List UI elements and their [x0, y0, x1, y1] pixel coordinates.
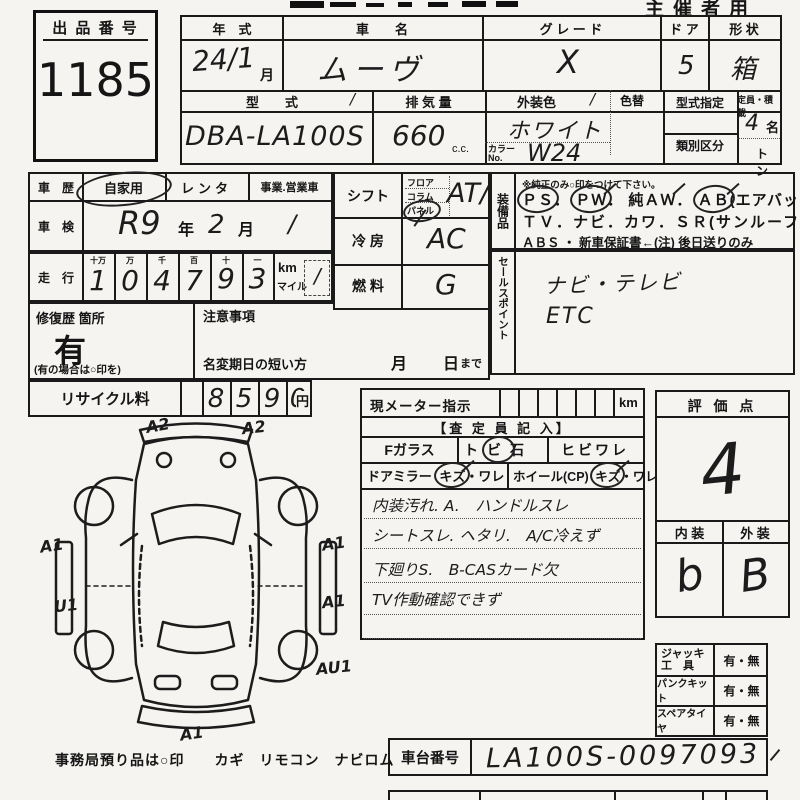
color-tick: /	[590, 90, 595, 108]
damage-annotation: A1	[321, 532, 347, 554]
interior-label: 内 装	[657, 523, 722, 542]
exterior-color-label: 外装色	[517, 92, 556, 111]
jack-value: 有・無	[713, 645, 770, 675]
vehicle-table: 年 式 車 名 グ レ ー ド ド ア 形 状 24/1 月 ムーヴ X 5 箱…	[180, 15, 782, 165]
class-division-label: 類別区分	[663, 137, 737, 154]
organizer-use-label: 主催者用	[645, 0, 757, 15]
history-label: 車 歴	[30, 174, 82, 200]
puncture-kit-label: パンクキット	[657, 675, 713, 705]
equipment-line1: ＰＳ． ＰＷ． 純ＡＷ． ＡＢ(エアバック)	[522, 189, 800, 210]
repair-note: (有の場合は○印を)	[34, 362, 121, 377]
mileage-digit: 3	[242, 262, 273, 295]
year-month-unit: 月	[260, 65, 274, 85]
evaluation-box: 評 価 点 4 内 装 外 装 b B	[655, 390, 790, 618]
inspection-year-unit: 年	[178, 216, 194, 240]
km-unit: km	[278, 260, 297, 275]
mileage-unit-tick: /	[314, 264, 321, 288]
sales-line1: ナビ・テレビ	[544, 266, 683, 301]
model-tick: /	[350, 90, 355, 108]
equip-ab-note: (エアバック)	[730, 192, 800, 209]
name-change-made: まで	[460, 355, 482, 371]
inspector-header: 【査 定 員 記 入】	[362, 418, 643, 437]
damage-annotation: A2	[241, 417, 266, 438]
mileage-digit: 0	[114, 264, 146, 297]
equip-ab: ＡＢ	[698, 189, 730, 210]
inspector-note-1: 内装汚れ. A. ハンドルスレ	[372, 494, 568, 516]
mile-unit: マイル	[277, 278, 307, 293]
ac-value: AC	[427, 222, 466, 255]
equip-ps: ＰＳ	[522, 189, 554, 210]
bottom-partial-table	[388, 790, 768, 800]
mirror-crack-opt: ・ワレ	[465, 469, 504, 484]
equip-aw: 純ＡＷ	[628, 189, 676, 210]
recycle-fee-row: リサイクル料 8 5 9 0 円	[28, 380, 312, 417]
shift-label: シフト	[335, 174, 401, 217]
wheel-crack-opt: ・ワレ	[620, 470, 658, 484]
repair-label: 修復歴 箇所	[36, 308, 105, 327]
exterior-grade: B	[719, 546, 791, 606]
chassis-number-box: 車台番号 LA100S-0097093	[388, 738, 768, 776]
inspection-tick: /	[288, 210, 296, 238]
equipment-label: 装備品	[494, 176, 512, 246]
model-label: 型 式	[182, 92, 362, 111]
name-change-day: 日	[443, 350, 459, 374]
auction-number-value: 1185	[36, 53, 155, 107]
wheel-label: ホイール(CP)	[513, 470, 589, 484]
meter-unit: km	[619, 395, 638, 410]
recycle-digit: 5	[230, 384, 258, 414]
color-no-value: W24	[527, 139, 581, 167]
year-label: 年 式	[182, 19, 282, 38]
equipment-line2: ＴＶ．ナビ．カワ．ＳＲ(サンルーフ)	[522, 211, 800, 232]
sales-line2: ETC	[546, 304, 595, 329]
spare-tire-label: スペアタイヤ	[657, 705, 713, 735]
wheel-scratch-opt: キズ	[595, 466, 620, 485]
recycle-unit: 円	[296, 391, 309, 410]
car-top-view-schematic	[36, 414, 356, 748]
chassis-value: LA100S-0097093	[486, 739, 761, 775]
displacement-unit: c.c.	[452, 143, 469, 155]
damage-annotation: AU1	[315, 656, 353, 679]
fuel-value: G	[435, 268, 457, 301]
name-change-month: 月	[391, 350, 407, 374]
color-change-label: 色替	[620, 92, 644, 109]
inspection-row: 車 検 R9 年 2 月 /	[28, 200, 333, 252]
puncture-kit-value: 有・無	[713, 675, 770, 705]
shape-label: 形 状	[708, 19, 780, 38]
mileage-label: 走 行	[30, 254, 82, 300]
jack-label-line1: ジャッキ	[661, 648, 704, 660]
ac-label: 冷 房	[335, 217, 401, 264]
shape-value: 箱	[730, 49, 756, 86]
damage-annotation: A2	[145, 414, 171, 437]
chassis-hand-tick	[770, 749, 781, 761]
damage-annotation: A1	[321, 591, 346, 612]
caution-label: 注意事項	[203, 306, 255, 325]
year-value: 24/1	[191, 41, 256, 78]
interior-grade: b	[653, 545, 726, 607]
model-value: DBA-LA100S	[185, 121, 365, 152]
equipment-box: 装備品 ※純正のみ○印をつけて下さい。 ＰＳ． ＰＷ． 純ＡＷ． ＡＢ(エアバッ…	[490, 172, 795, 250]
displacement-label: 排 気 量	[372, 92, 485, 111]
front-glass-label: Fガラス	[362, 440, 457, 460]
damage-annotation: U1	[53, 595, 79, 616]
jack-label-line2: 工 具	[661, 660, 694, 672]
caution-box: 注意事項 名変期日の短い方 月 日 まで	[195, 302, 490, 380]
name-label: 車 名	[282, 19, 482, 38]
name-change-label: 名変期日の短い方	[203, 354, 307, 373]
sep: ．	[676, 192, 692, 209]
capacity-value: 4	[745, 111, 759, 136]
door-mirror-label: ドアミラー	[367, 469, 432, 484]
inspection-era: R9	[118, 204, 161, 242]
recycle-digit: 8	[202, 384, 230, 414]
car-damage-diagram: A2 A2 A1 U1 A1 A1 AU1 A1	[36, 414, 356, 748]
auction-number-label: 出 品 番 号	[36, 17, 155, 38]
inspection-label: 車 検	[30, 202, 82, 250]
controls-column: シフト 冷 房 燃 料 フロア コラム パネル AT/ AC G	[333, 172, 490, 310]
mileage-digit: 9	[210, 262, 242, 295]
wheel-row: ホイール(CP) キズ・ワレ	[513, 466, 658, 485]
repair-history-box: 修復歴 箇所 有 (有の場合は○印を)	[28, 302, 195, 380]
damage-annotation: A1	[179, 722, 205, 744]
evaluation-score: 4	[653, 417, 793, 522]
mileage-row: 走 行 十万 万 千 百 十 一 1 0 4 7 9 3 km マイル /	[28, 252, 333, 302]
meter-label: 現メーター指示	[370, 395, 472, 415]
tobi-opt-circled: ビ	[487, 440, 510, 460]
auction-number-box: 出 品 番 号 1185	[33, 10, 158, 162]
inspector-note-2: シートスレ. ヘタリ. A/C冷えず	[372, 524, 599, 546]
office-keep-note: 事務局預り品は○印 カギ リモコン ナビロム	[55, 750, 394, 770]
displacement-value: 660	[392, 119, 445, 152]
history-business: 事業.営業車	[248, 174, 331, 200]
sales-point-box: セールスポイント ナビ・テレビ ETC	[490, 250, 795, 375]
fuel-label: 燃 料	[335, 264, 401, 308]
inspector-note-4: TV作動確認できず	[372, 588, 501, 610]
capacity-unit: 名	[766, 117, 779, 136]
recycle-digit: 9	[258, 384, 286, 414]
exterior-label: 外 装	[722, 523, 788, 542]
type-designation-label: 型式指定	[663, 94, 737, 111]
door-mirror-row: ドアミラー キズ・ワレ	[367, 466, 504, 485]
inspector-note-3: 下廻りS. B-CASカード欠	[372, 558, 558, 580]
organizer-use-label-clip: 主催者用	[645, 0, 795, 15]
crack-label: ヒビワレ	[547, 440, 643, 460]
mirror-scratch-opt: キズ	[439, 466, 465, 485]
mileage-digit: 4	[146, 264, 178, 297]
grade-value: X	[557, 43, 579, 81]
evaluation-label: 評 価 点	[657, 396, 788, 416]
door-value: 5	[678, 51, 695, 81]
history-row: 車 歴 自家用 レンタ 事業.営業車	[28, 172, 333, 202]
color-no-label: カラーNo.	[488, 145, 518, 163]
spare-tire-value: 有・無	[713, 705, 770, 735]
accessories-box: ジャッキ 工 具 有・無 パンクキット 有・無 スペアタイヤ 有・無	[655, 643, 768, 737]
mileage-digit: 7	[178, 264, 210, 297]
grade-label: グ レ ー ド	[482, 19, 660, 38]
auction-sheet-scan: { "header": { "organizer_label": "主催者用" …	[0, 0, 800, 800]
mileage-digit: 1	[82, 264, 114, 297]
jack-tools-label: ジャッキ 工 具	[661, 648, 704, 672]
door-label: ド ア	[660, 19, 708, 38]
name-value: ムーヴ	[317, 45, 425, 89]
equip-pw: ＰＷ	[575, 189, 607, 210]
stone-chip-options: トビ石	[464, 440, 533, 460]
chassis-label: 車台番号	[390, 740, 470, 774]
history-rental: レンタ	[165, 174, 248, 200]
inspection-month-unit: 月	[238, 216, 254, 240]
sales-point-label: セールスポイント	[495, 256, 511, 371]
damage-annotation: A1	[39, 534, 65, 556]
inspection-month: 2	[208, 210, 225, 240]
shift-value: AT/	[447, 178, 489, 209]
meter-box: 現メーター指示 km 【査 定 員 記 入】 Fガラス トビ石 ヒビワレ ドアミ…	[360, 388, 645, 640]
equipment-line3: ＡＢＳ ・ 新車保証書←(注) 後日送りのみ	[522, 232, 753, 251]
recycle-label: リサイクル料	[30, 382, 180, 415]
